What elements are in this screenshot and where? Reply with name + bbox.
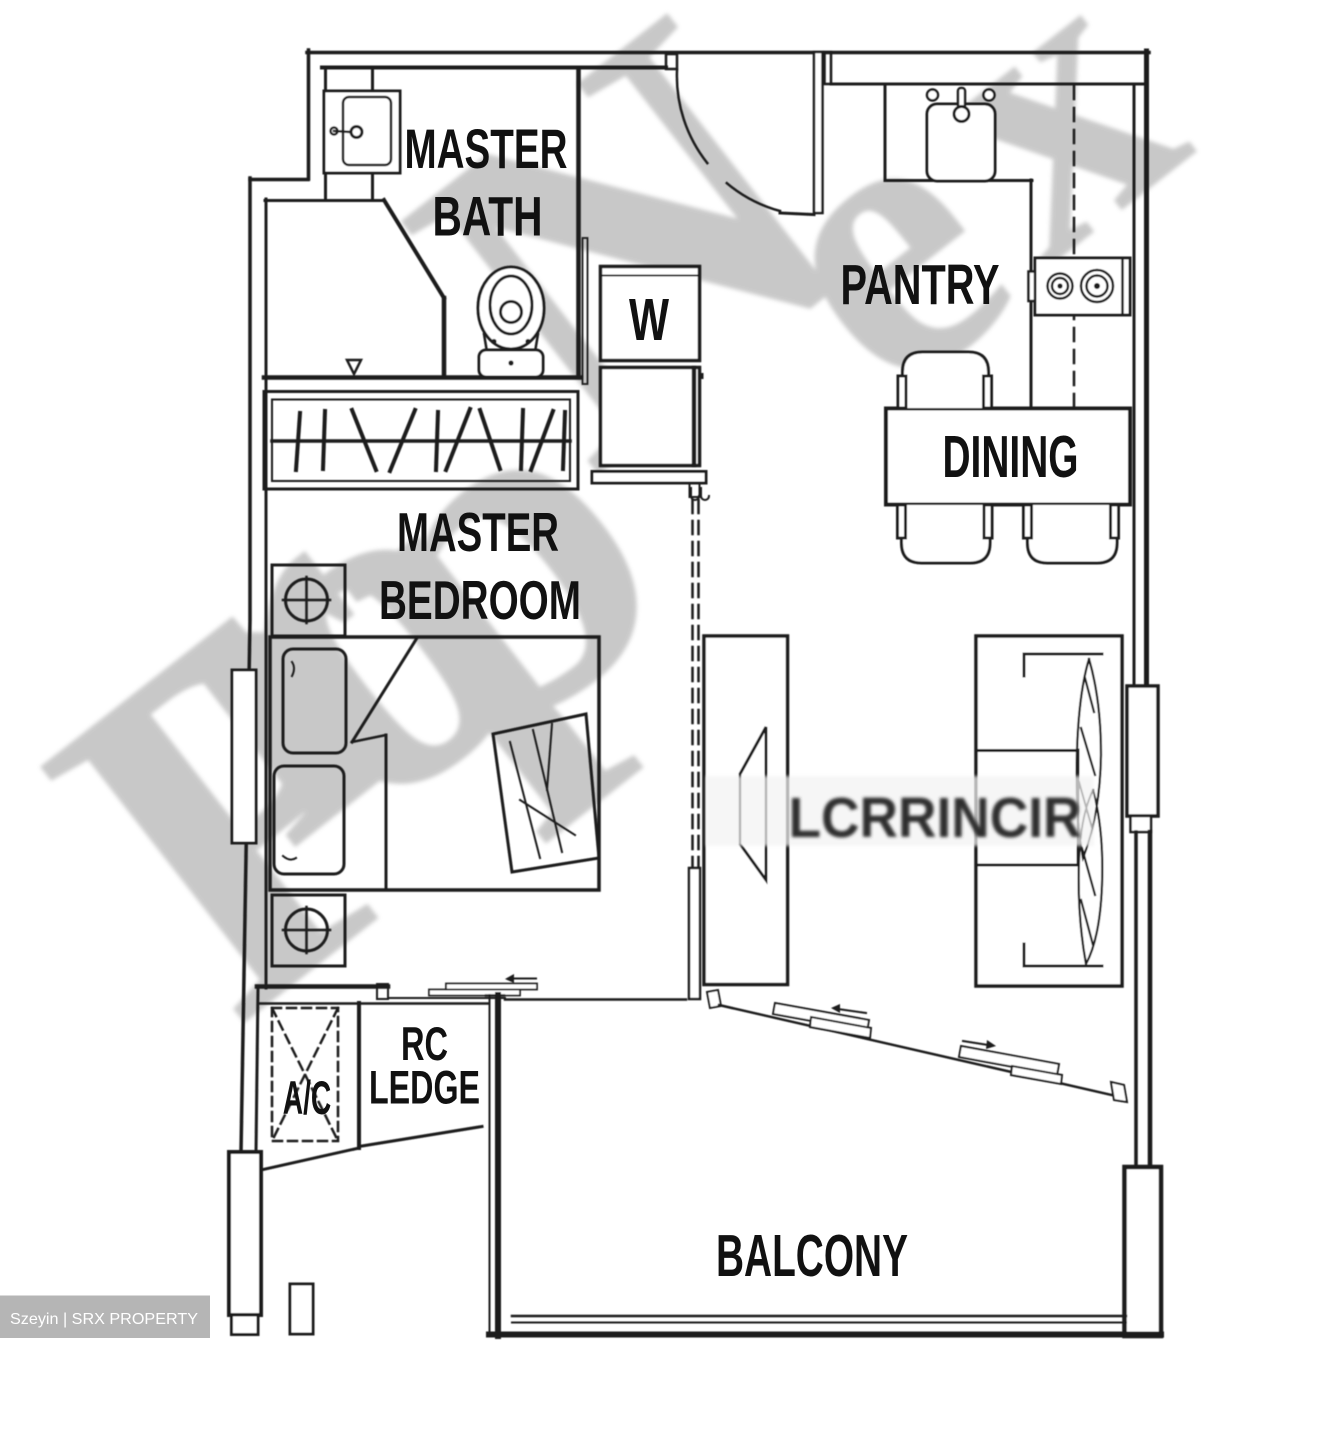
svg-text:W: W — [629, 287, 669, 353]
svg-text:BATH: BATH — [433, 185, 543, 248]
svg-text:LCRRINCIR: LCRRINCIR — [789, 786, 1082, 850]
svg-text:BALCONY: BALCONY — [716, 1223, 908, 1289]
svg-text:BEDROOM: BEDROOM — [379, 569, 581, 631]
svg-text:PANTRY: PANTRY — [841, 253, 1000, 317]
svg-text:MASTER: MASTER — [405, 117, 568, 180]
svg-text:LEDGE: LEDGE — [369, 1061, 480, 1114]
svg-text:A/C: A/C — [283, 1071, 332, 1124]
svg-text:Szeyin | SRX PROPERTY: Szeyin | SRX PROPERTY — [10, 1311, 198, 1328]
svg-text:DINING: DINING — [943, 424, 1079, 490]
svg-text:MASTER: MASTER — [397, 501, 559, 563]
